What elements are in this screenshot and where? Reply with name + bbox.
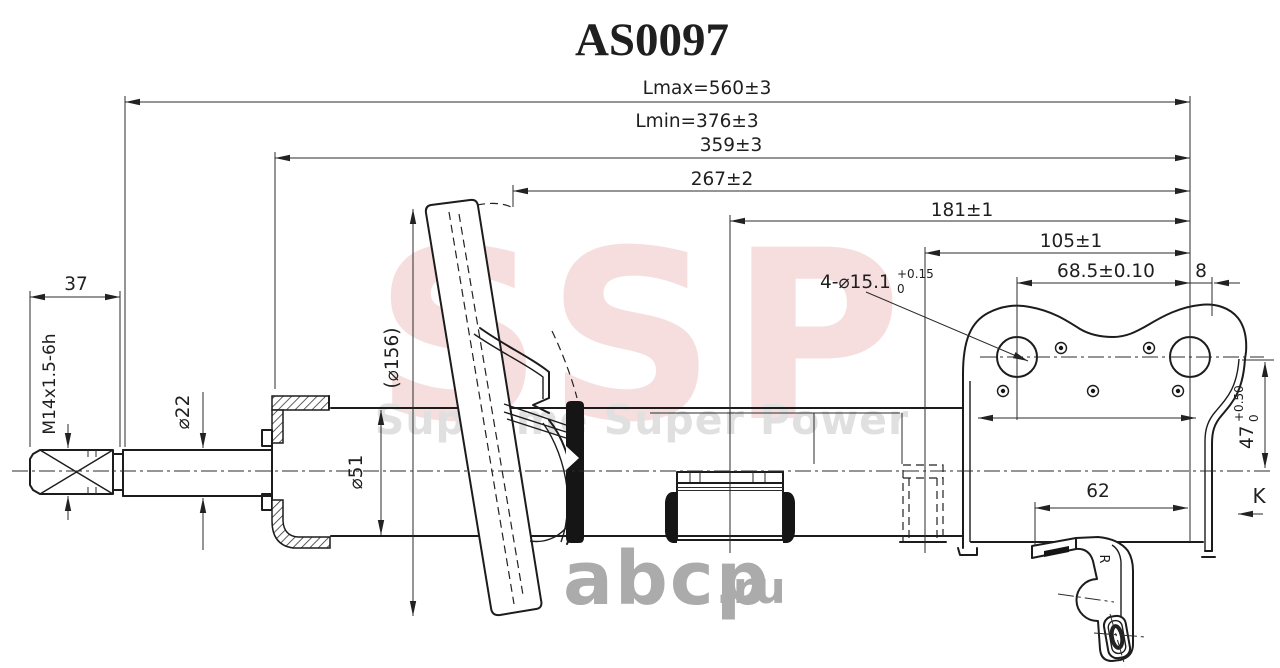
dim-359: 359±3	[700, 135, 763, 156]
dim-47-tol-minus: 0	[1247, 414, 1261, 422]
dim-body-dia: ⌀51	[346, 455, 367, 490]
dim-8: 8	[1195, 261, 1207, 282]
dim-105: 105±1	[1040, 231, 1103, 252]
dim-lmin: Lmin=376±3	[635, 111, 758, 132]
dim-holes-tol-minus: 0	[897, 282, 905, 296]
label-mark-r: R	[1096, 554, 1111, 563]
watermark-slogan: Supreme Super Power	[375, 396, 909, 444]
dim-68: 68.5±0.10	[1057, 261, 1155, 282]
dim-lmax: Lmax=560±3	[643, 78, 772, 99]
dim-seat-dia: (⌀156)	[382, 328, 403, 389]
dim-47-tol-plus: +0.50	[1232, 385, 1246, 422]
label-view-k: K	[1252, 484, 1266, 508]
seat-collar-band	[566, 401, 584, 543]
technical-drawing: SSP Supreme Super Power abcp .ru	[0, 0, 1280, 668]
watermark-site-tld: .ru	[716, 563, 786, 614]
dim-holes: 4-⌀15.1	[820, 272, 891, 293]
part-number-title: AS0097	[575, 14, 729, 66]
dim-47: 47	[1237, 425, 1258, 449]
dim-thread: M14x1.5-6h	[40, 333, 60, 434]
dim-37: 37	[64, 274, 88, 295]
dim-62: 62	[1086, 481, 1110, 502]
dim-rod-dia: ⌀22	[173, 395, 194, 430]
dim-181: 181±1	[931, 200, 994, 221]
dim-267: 267±2	[691, 169, 754, 190]
dim-holes-tol-plus: +0.15	[897, 267, 934, 281]
